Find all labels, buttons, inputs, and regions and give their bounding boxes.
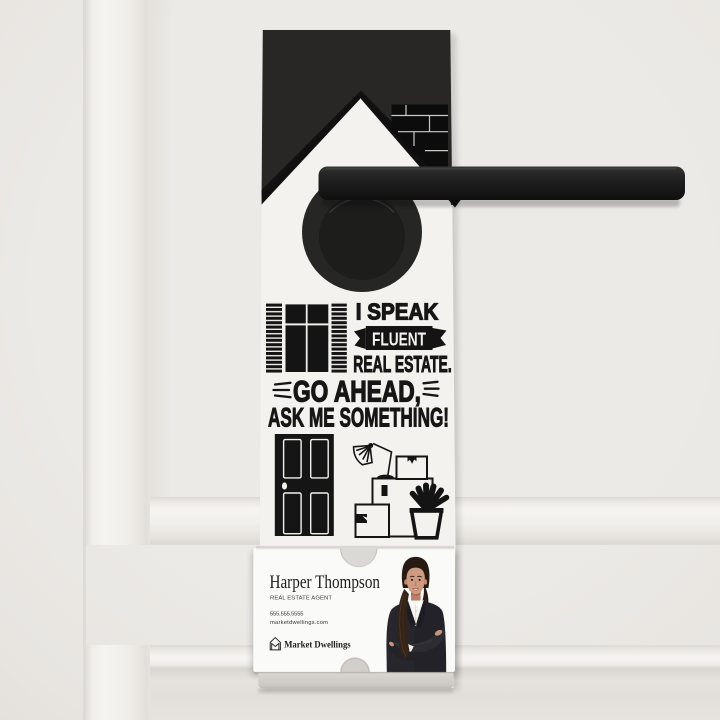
svg-text:555.555.5555: 555.555.5555 bbox=[270, 612, 304, 618]
svg-text:FLUENT: FLUENT bbox=[372, 328, 427, 349]
svg-text:REAL ESTATE.: REAL ESTATE. bbox=[353, 351, 452, 377]
svg-text:Market Dwellings: Market Dwellings bbox=[284, 640, 351, 650]
svg-text:REAL ESTATE AGENT: REAL ESTATE AGENT bbox=[270, 596, 332, 602]
svg-text:Harper Thompson: Harper Thompson bbox=[270, 572, 381, 593]
svg-text:ASK ME SOMETHING!: ASK ME SOMETHING! bbox=[268, 402, 449, 432]
svg-text:marketdwellings.com: marketdwellings.com bbox=[270, 620, 328, 626]
svg-text:I SPEAK: I SPEAK bbox=[356, 299, 439, 325]
